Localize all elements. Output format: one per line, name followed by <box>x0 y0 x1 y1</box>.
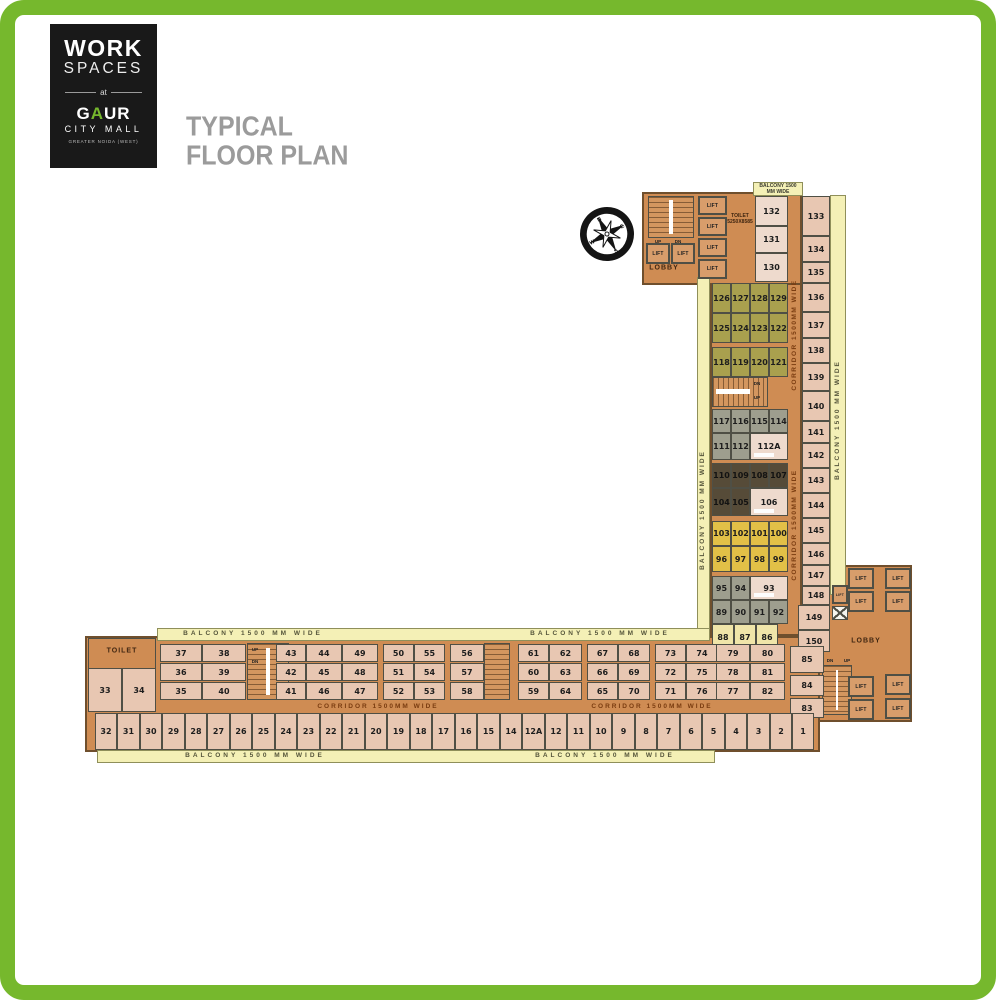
unit-2: 2 <box>770 713 792 750</box>
plan-label: DN <box>827 658 834 664</box>
plan-label: TOILET 5250X8585 <box>727 213 753 226</box>
plan-label: UP <box>655 239 661 245</box>
unit-42: 42 <box>276 663 306 681</box>
unit-128: 128 <box>750 283 769 313</box>
unit-67: 67 <box>587 644 618 662</box>
logo-line1: WORK <box>64 37 143 60</box>
lift-box: LIFT <box>698 217 727 236</box>
unit-66: 66 <box>587 663 618 681</box>
unit-60: 60 <box>518 663 549 681</box>
unit-133: 133 <box>802 196 830 236</box>
unit-46: 46 <box>306 682 342 700</box>
brand-a-triangle-icon: A <box>91 104 104 123</box>
unit-59: 59 <box>518 682 549 700</box>
unit-149: 149 <box>798 605 830 630</box>
unit-104: 104 <box>712 488 731 516</box>
unit-124: 124 <box>731 313 750 343</box>
unit-71: 71 <box>655 682 686 700</box>
unit-73: 73 <box>655 644 686 662</box>
unit-41: 41 <box>276 682 306 700</box>
plan-label: LOBBY <box>851 638 881 647</box>
unit-123: 123 <box>750 313 769 343</box>
plan-label: BALCONY 1500 MM WIDE <box>699 450 707 570</box>
lift-box: LIFT <box>698 238 727 257</box>
unit-18: 18 <box>410 713 432 750</box>
unit-143: 143 <box>802 468 830 493</box>
logo-at-divider: at <box>65 88 142 97</box>
unit-74: 74 <box>686 644 718 662</box>
unit-25: 25 <box>252 713 275 750</box>
unit-15: 15 <box>477 713 500 750</box>
unit-100: 100 <box>769 521 788 546</box>
unit-132: 132 <box>755 196 788 226</box>
unit-38: 38 <box>202 644 246 662</box>
plan-label: UP <box>754 395 760 401</box>
unit-117: 117 <box>712 409 731 433</box>
unit-97: 97 <box>731 546 750 572</box>
unit-40: 40 <box>202 682 246 700</box>
unit-90: 90 <box>731 600 750 624</box>
unit-76: 76 <box>686 682 718 700</box>
unit-120: 120 <box>750 347 769 377</box>
plan-label: BALCONY 1500 MM WIDE <box>530 630 670 638</box>
brand-sub: CITY MALL <box>65 124 143 134</box>
unit-118: 118 <box>712 347 731 377</box>
unit-21: 21 <box>342 713 365 750</box>
unit-24: 24 <box>275 713 297 750</box>
unit-112: 112 <box>731 433 750 460</box>
plan-label: BALCONY 1500 MM WIDE <box>834 360 842 480</box>
plan-label: CORRIDOR 1500MM WIDE <box>317 703 438 711</box>
unit-8: 8 <box>635 713 657 750</box>
unit-75: 75 <box>686 663 718 681</box>
unit-146: 146 <box>802 543 830 565</box>
unit-51: 51 <box>383 663 414 681</box>
unit-111: 111 <box>712 433 731 460</box>
logo-line2: SPACES <box>64 60 144 79</box>
unit-28: 28 <box>185 713 207 750</box>
unit-6: 6 <box>680 713 702 750</box>
unit-69: 69 <box>618 663 650 681</box>
unit-99: 99 <box>769 546 788 572</box>
unit-11: 11 <box>567 713 590 750</box>
unit-126: 126 <box>712 283 731 313</box>
staircase <box>484 643 510 700</box>
page-title: TYPICAL FLOOR PLAN <box>186 112 349 171</box>
unit-12: 12 <box>545 713 567 750</box>
divider-line <box>65 92 96 93</box>
unit-45: 45 <box>306 663 342 681</box>
lift-box: LIFT <box>885 591 911 612</box>
plan-label: DN <box>675 239 682 245</box>
unit-127: 127 <box>731 283 750 313</box>
unit-95: 95 <box>712 576 731 600</box>
unit-85: 85 <box>790 646 824 673</box>
unit-68: 68 <box>618 644 650 662</box>
crossed-shaft-box <box>832 606 848 620</box>
unit-48: 48 <box>342 663 378 681</box>
unit-61: 61 <box>518 644 549 662</box>
lift-box: LIFT <box>671 243 695 264</box>
unit-89: 89 <box>712 600 731 624</box>
page-title-line2: FLOOR PLAN <box>186 141 349 170</box>
unit-29: 29 <box>162 713 185 750</box>
unit-109: 109 <box>731 463 750 488</box>
staircase <box>648 196 694 238</box>
logo-at: at <box>100 88 107 97</box>
unit-137: 137 <box>802 312 830 338</box>
plan-label: DN <box>754 381 761 387</box>
unit-12A: 12A <box>522 713 545 750</box>
unit-81: 81 <box>750 663 785 681</box>
unit-112A: 112A <box>750 433 788 460</box>
unit-26: 26 <box>230 713 252 750</box>
lift-box: LIFT <box>885 568 911 589</box>
unit-98: 98 <box>750 546 769 572</box>
unit-49: 49 <box>342 644 378 662</box>
brand-name: GAUR <box>76 105 130 122</box>
unit-148: 148 <box>802 586 830 605</box>
plan-label: CORRIDOR 1500MM WIDE <box>791 279 799 390</box>
plan-label: CORRIDOR 1500MM WIDE <box>591 703 712 711</box>
lift-box: LIFT <box>885 698 911 719</box>
workspaces-logo: WORK SPACES at GAUR CITY MALL GREATER NO… <box>50 24 157 168</box>
unit-54: 54 <box>414 663 445 681</box>
unit-145: 145 <box>802 518 830 543</box>
brand-g: G <box>76 104 90 123</box>
unit-130: 130 <box>755 253 788 282</box>
unit-53: 53 <box>414 682 445 700</box>
unit-65: 65 <box>587 682 618 700</box>
plan-label: DN <box>252 659 259 665</box>
unit-106: 106 <box>750 488 788 516</box>
unit-125: 125 <box>712 313 731 343</box>
unit-102: 102 <box>731 521 750 546</box>
unit-134: 134 <box>802 236 830 262</box>
unit-72: 72 <box>655 663 686 681</box>
unit-23: 23 <box>297 713 320 750</box>
plan-label: CORRIDOR 1500MM WIDE <box>791 469 799 580</box>
unit-20: 20 <box>365 713 387 750</box>
unit-82: 82 <box>750 682 785 700</box>
unit-9: 9 <box>612 713 635 750</box>
plan-label: BALCONY 1500 MM WIDE <box>185 752 325 760</box>
brand-ur: UR <box>104 104 131 123</box>
unit-14: 14 <box>500 713 522 750</box>
unit-91: 91 <box>750 600 769 624</box>
unit-31: 31 <box>117 713 140 750</box>
lift-box: LIFT <box>848 591 874 612</box>
lift-box: LIFT <box>848 699 874 720</box>
page: WORK SPACES at GAUR CITY MALL GREATER NO… <box>0 0 996 1000</box>
unit-10: 10 <box>590 713 612 750</box>
unit-136: 136 <box>802 283 830 312</box>
unit-139: 139 <box>802 363 830 391</box>
unit-35: 35 <box>160 682 202 700</box>
unit-62: 62 <box>549 644 582 662</box>
divider-line <box>111 92 142 93</box>
unit-70: 70 <box>618 682 650 700</box>
unit-5: 5 <box>702 713 725 750</box>
unit-144: 144 <box>802 493 830 518</box>
unit-142: 142 <box>802 443 830 468</box>
page-title-line1: TYPICAL <box>186 112 349 141</box>
unit-107: 107 <box>769 463 788 488</box>
unit-110: 110 <box>712 463 731 488</box>
plan-label: UP <box>252 647 258 653</box>
unit-39: 39 <box>202 663 246 681</box>
unit-17: 17 <box>432 713 455 750</box>
unit-147: 147 <box>802 565 830 586</box>
unit-57: 57 <box>450 663 484 681</box>
unit-77: 77 <box>716 682 750 700</box>
unit-4: 4 <box>725 713 747 750</box>
unit-16: 16 <box>455 713 477 750</box>
lift-box: LIFT <box>848 676 874 697</box>
unit-140: 140 <box>802 391 830 421</box>
unit-114: 114 <box>769 409 788 433</box>
unit-32: 32 <box>95 713 117 750</box>
unit-7: 7 <box>657 713 680 750</box>
lift-box: LIFT <box>885 674 911 695</box>
unit-84: 84 <box>790 675 824 696</box>
plan-label: TOILET <box>107 648 138 657</box>
unit-33: 33 <box>88 668 122 712</box>
unit-56: 56 <box>450 644 484 662</box>
unit-101: 101 <box>750 521 769 546</box>
lift-box: LIFT <box>848 568 874 589</box>
unit-94: 94 <box>731 576 750 600</box>
plan-label: BALCONY 1500 MM WIDE <box>535 752 675 760</box>
unit-131: 131 <box>755 226 788 253</box>
unit-37: 37 <box>160 644 202 662</box>
unit-19: 19 <box>387 713 410 750</box>
plan-label: BALCONY 1500 MM WIDE <box>183 630 323 638</box>
unit-119: 119 <box>731 347 750 377</box>
unit-55: 55 <box>414 644 445 662</box>
unit-27: 27 <box>207 713 230 750</box>
unit-96: 96 <box>712 546 731 572</box>
unit-50: 50 <box>383 644 414 662</box>
unit-3: 3 <box>747 713 770 750</box>
unit-78: 78 <box>716 663 750 681</box>
unit-80: 80 <box>750 644 785 662</box>
unit-63: 63 <box>549 663 582 681</box>
plan-label: UP <box>844 658 850 664</box>
unit-135: 135 <box>802 262 830 283</box>
unit-141: 141 <box>802 421 830 443</box>
unit-44: 44 <box>306 644 342 662</box>
plan-label: BALCONY 1500 MM WIDE <box>759 183 796 196</box>
unit-79: 79 <box>716 644 750 662</box>
unit-116: 116 <box>731 409 750 433</box>
unit-138: 138 <box>802 338 830 363</box>
unit-30: 30 <box>140 713 162 750</box>
unit-64: 64 <box>549 682 582 700</box>
unit-58: 58 <box>450 682 484 700</box>
unit-36: 36 <box>160 663 202 681</box>
plan-label: LOBBY <box>649 265 679 274</box>
unit-129: 129 <box>769 283 788 313</box>
brand-tagline: GREATER NOIDA (WEST) <box>69 139 139 144</box>
unit-1: 1 <box>792 713 814 750</box>
unit-93: 93 <box>750 576 788 600</box>
unit-34: 34 <box>122 668 156 712</box>
unit-122: 122 <box>769 313 788 343</box>
unit-108: 108 <box>750 463 769 488</box>
lift-box: LIFT <box>646 243 670 264</box>
unit-52: 52 <box>383 682 414 700</box>
unit-92: 92 <box>769 600 788 624</box>
lift-box: LIFT <box>698 196 727 215</box>
unit-103: 103 <box>712 521 731 546</box>
lift-box: LIFT <box>832 585 848 604</box>
lift-box: LIFT <box>698 259 727 279</box>
unit-47: 47 <box>342 682 378 700</box>
unit-115: 115 <box>750 409 769 433</box>
unit-105: 105 <box>731 488 750 516</box>
unit-22: 22 <box>320 713 342 750</box>
unit-121: 121 <box>769 347 788 377</box>
unit-43: 43 <box>276 644 306 662</box>
